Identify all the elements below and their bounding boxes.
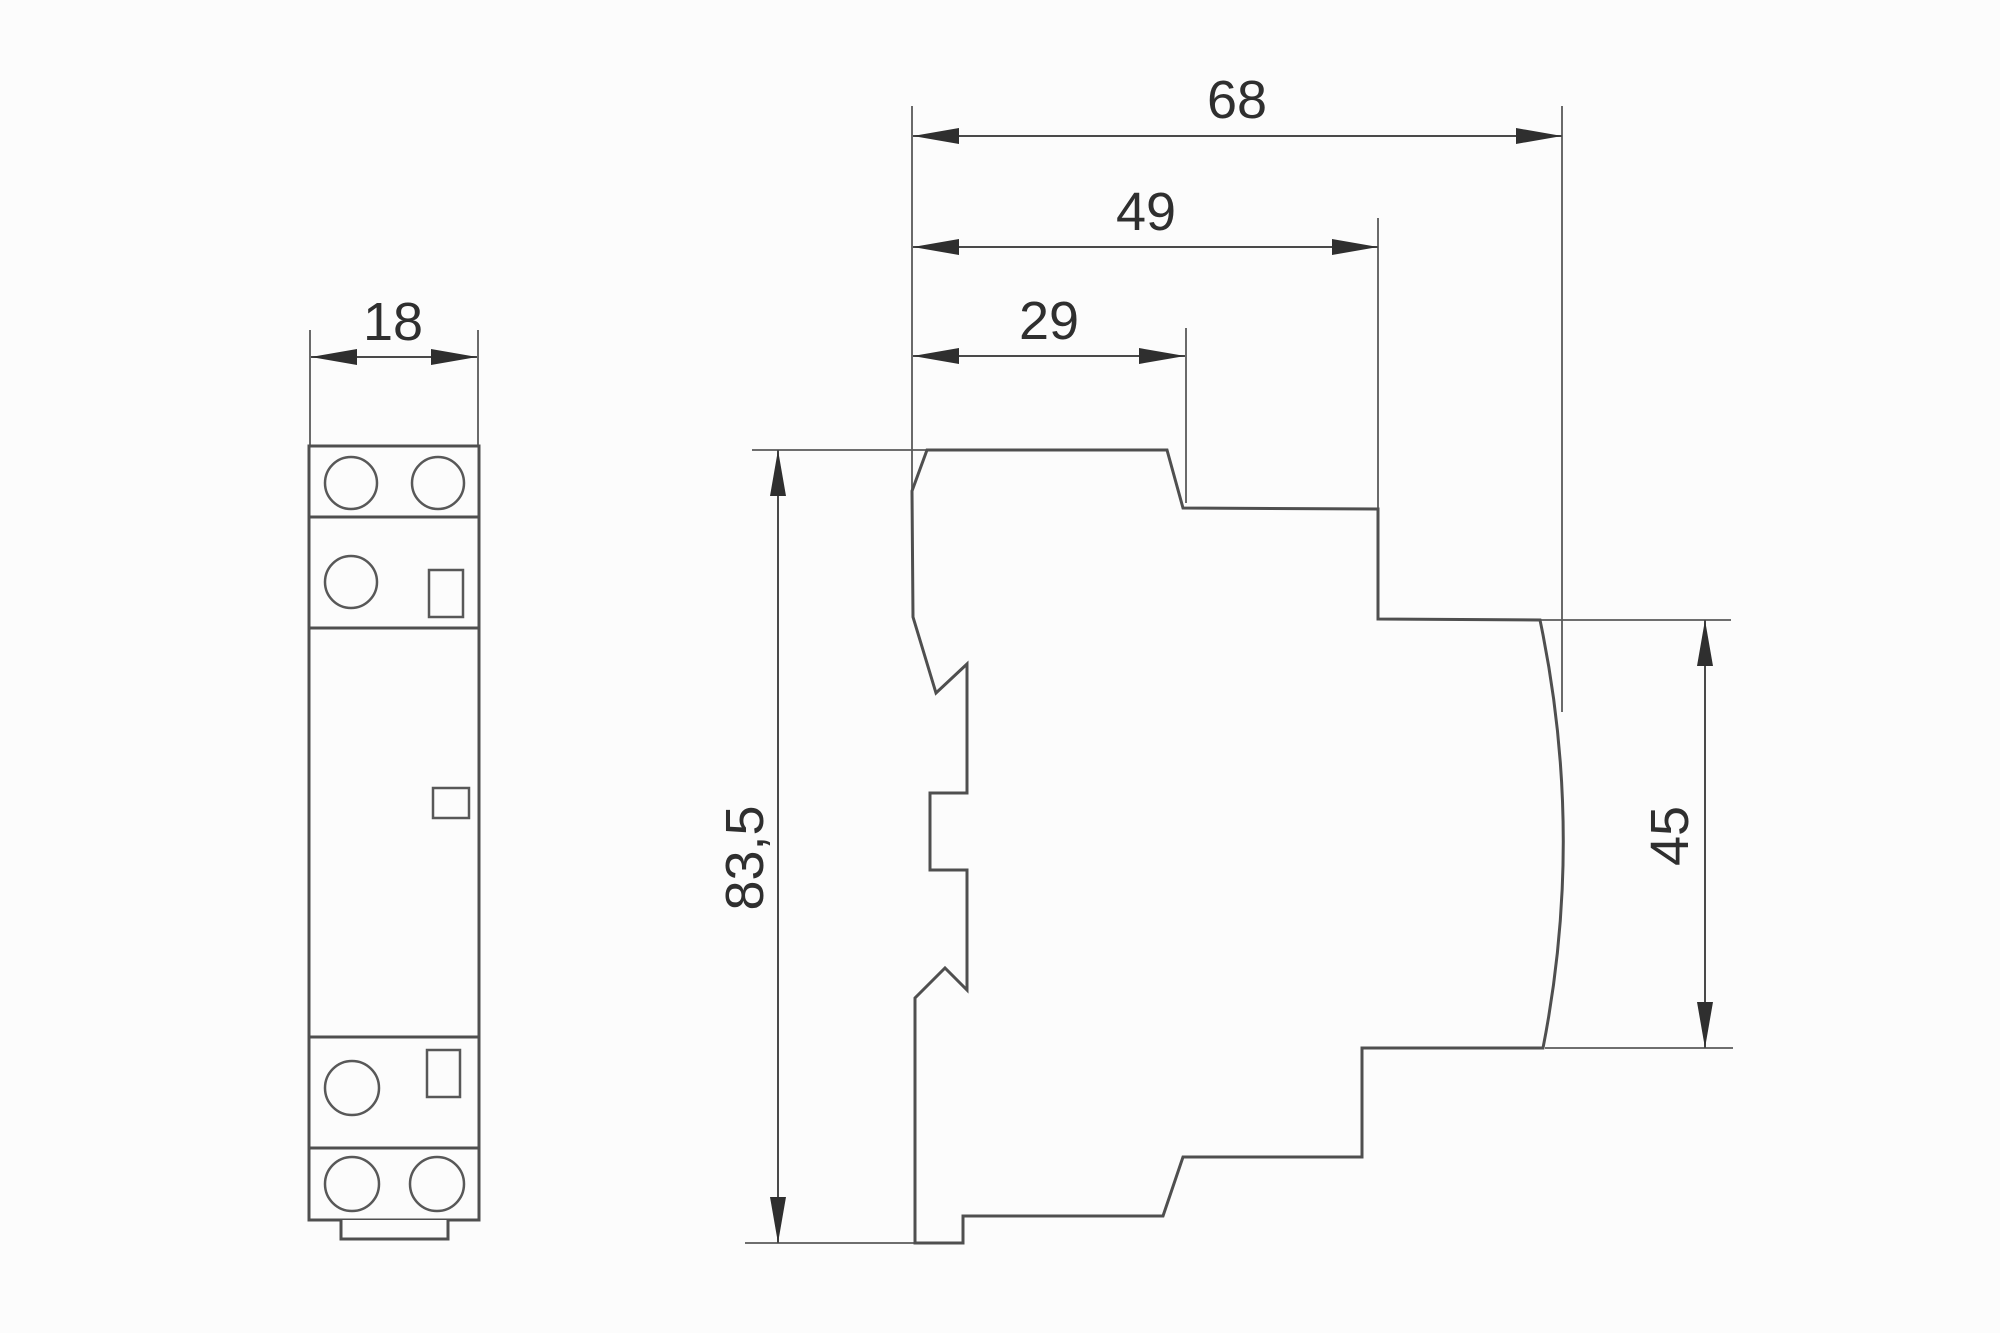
side-profile — [912, 450, 1563, 1243]
overall-height-label: 83,5 — [715, 805, 775, 910]
side-upper-depth-label: 49 — [1116, 182, 1176, 242]
arrow-right-68 — [1516, 128, 1562, 144]
dimension-drawing-svg: 18 68 49 29 83,5 — [0, 0, 2000, 1333]
front-view — [309, 446, 479, 1239]
side-top-depth-label: 29 — [1019, 291, 1079, 351]
dim-overall-height: 83,5 — [715, 450, 786, 1243]
dim-side-overall-depth: 68 — [913, 70, 1562, 144]
arrow-left-18 — [311, 349, 357, 365]
right-height-label: 45 — [1640, 806, 1700, 866]
dim-front-width: 18 — [311, 292, 477, 365]
arrow-left-29 — [913, 348, 959, 364]
arrow-down-45 — [1697, 1002, 1713, 1048]
arrow-up-83-5 — [770, 450, 786, 496]
side-overall-depth-label: 68 — [1207, 70, 1267, 130]
arrow-up-45 — [1697, 620, 1713, 666]
arrow-left-68 — [913, 128, 959, 144]
front-width-label: 18 — [363, 292, 423, 352]
drawing-canvas: 18 68 49 29 83,5 — [0, 0, 2000, 1333]
dim-right-height: 45 — [1640, 620, 1713, 1048]
arrow-down-83-5 — [770, 1197, 786, 1243]
arrow-right-49 — [1332, 239, 1378, 255]
front-foot-tab — [341, 1220, 448, 1239]
arrow-right-18 — [431, 349, 477, 365]
arrow-right-29 — [1139, 348, 1185, 364]
side-view — [912, 450, 1563, 1243]
dim-side-upper-depth: 49 — [913, 182, 1378, 255]
arrow-left-49 — [913, 239, 959, 255]
dim-side-top-depth: 29 — [913, 291, 1185, 364]
